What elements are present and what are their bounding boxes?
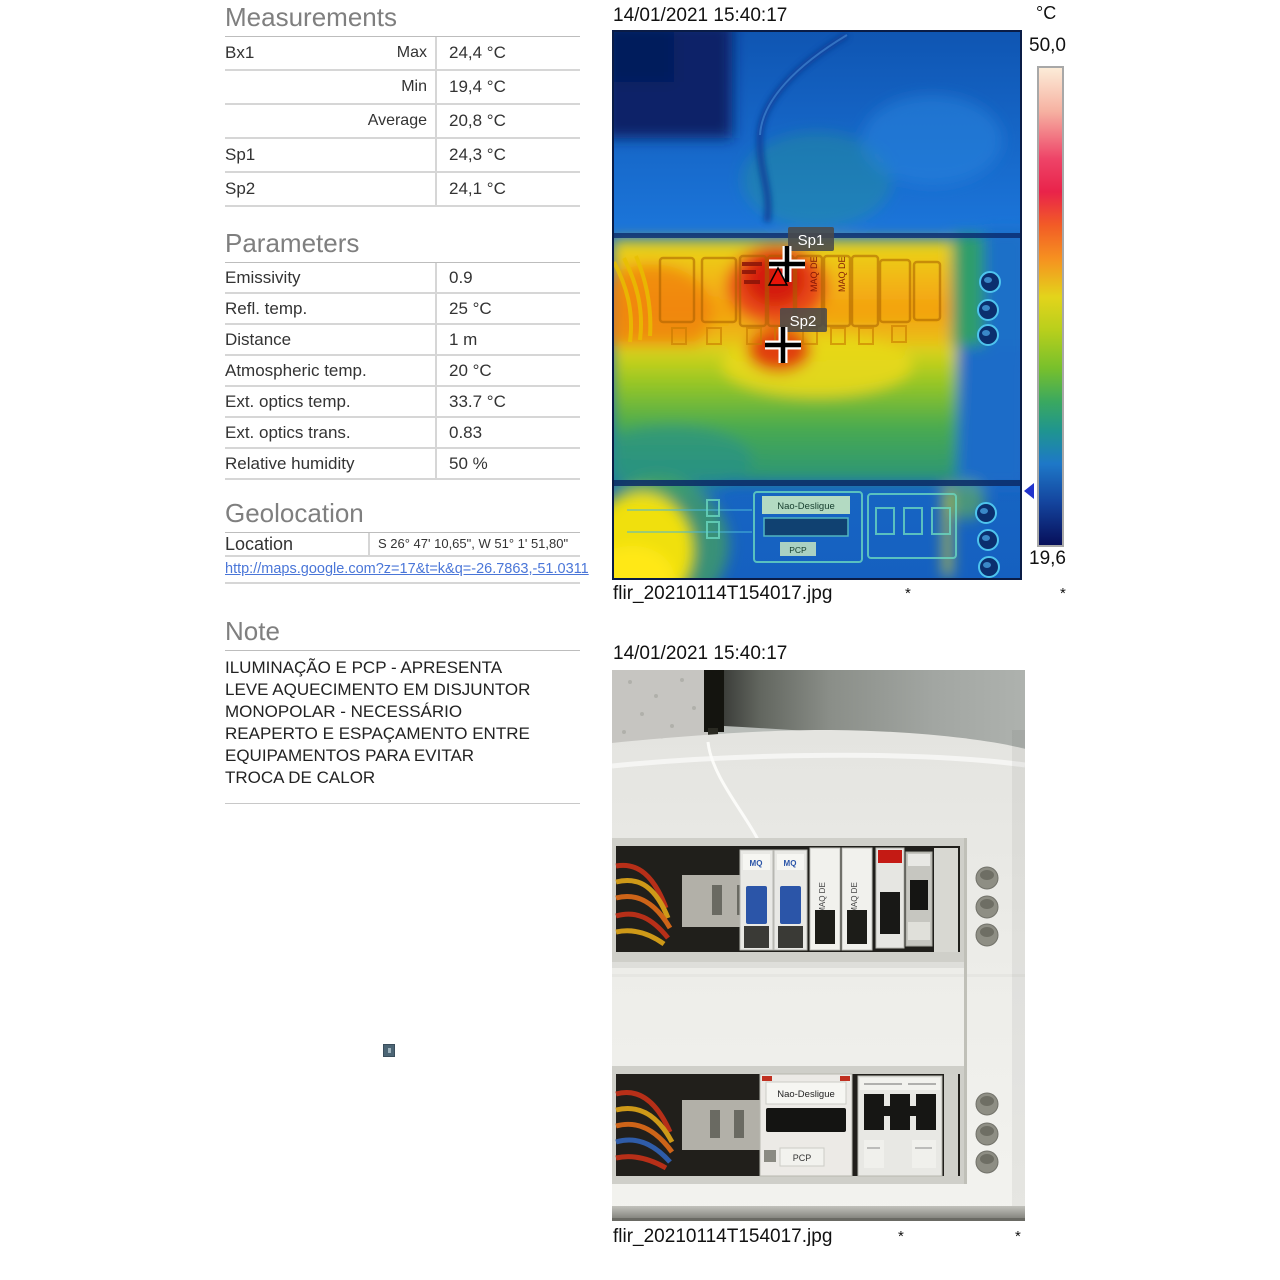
scale-min: 19,6 [1029,548,1066,570]
thermal-timestamp: 14/01/2021 15:40:17 [613,5,787,27]
param-value: 20 °C [435,356,580,385]
measure-sublabel: Max [397,44,427,62]
photo-footnote-mark: * [1015,1228,1021,1245]
geolocation-section: Geolocation Location S 26° 47' 10,65", W… [225,498,580,584]
visible-photo: MQ MQ MAQ DE MAQ DE [612,670,1025,1221]
thermal-breaker-text: MAQ DE [809,256,819,292]
thermal-footnote-mark: * [1060,585,1066,602]
table-row: Min 19,4 °C [225,71,580,105]
measurements-section: Measurements Bx1 Max 24,4 °C Min 19,4 °C… [225,2,580,207]
thermal-nao-desligue-label: Nao-Desligue [777,501,835,512]
parameters-section: Parameters Emissivity 0.9 Refl. temp. 25… [225,228,580,480]
location-value: S 26° 47' 10,65", W 51° 1' 51,80" [368,533,580,555]
table-row: Ext. optics temp. 33.7 °C [225,387,580,418]
table-row: Average 20,8 °C [225,105,580,139]
param-value: 33.7 °C [435,387,580,416]
table-row: Sp2 24,1 °C [225,173,580,207]
scale-unit: °C [1036,3,1056,24]
measure-label: Sp1 [225,145,255,165]
door-gap-shadow [704,670,724,732]
nao-desligue-label: Nao-Desligue [777,1089,835,1100]
measure-value: 24,3 °C [435,139,580,171]
param-label: Atmospheric temp. [225,361,435,381]
param-label: Ext. optics trans. [225,423,435,443]
param-label: Ext. optics temp. [225,392,435,412]
table-row: Distance 1 m [225,325,580,356]
scale-pointer-icon [1024,483,1034,499]
scale-max: 50,0 [1029,35,1066,57]
mq-breaker-label: MQ [750,859,763,868]
thermal-breaker-text: MAQ DE [837,256,847,292]
sp2-marker-label: Sp2 [790,313,817,330]
param-label: Distance [225,330,435,350]
location-label: Location [225,533,368,555]
thermal-filename: flir_20210114T154017.jpg [613,583,832,605]
param-label: Refl. temp. [225,299,435,319]
small-image-artifact [383,1044,395,1057]
maq-de-breaker-label: MAQ DE [850,882,859,914]
thermal-pcp-label: PCP [789,545,807,555]
maq-de-breaker-label: MAQ DE [818,882,827,914]
measure-value: 24,4 °C [435,37,580,69]
table-row: Relative humidity 50 % [225,449,580,480]
thermal-footnote-mark: * [905,585,911,602]
param-value: 50 % [435,449,580,478]
table-row: Emissivity 0.9 [225,263,580,294]
thermal-image: MAQ DE MAQ DE Nao-Desligue PCP [612,30,1022,580]
note-text: ILUMINAÇÃO E PCP - APRESENTA LEVE AQUECI… [225,651,580,804]
param-label: Relative humidity [225,454,435,474]
measure-label: Sp2 [225,179,255,199]
photo-filename: flir_20210114T154017.jpg [613,1226,832,1248]
note-title: Note [225,616,580,651]
pcp-label: PCP [793,1153,812,1163]
photo-footnote-mark: * [898,1228,904,1245]
geolocation-title: Geolocation [225,498,580,533]
lower-breaker-slot: Nao-Desligue PCP [612,1066,964,1184]
measurements-title: Measurements [225,2,580,37]
param-value: 1 m [435,325,580,354]
table-row: Bx1 Max 24,4 °C [225,37,580,71]
param-label: Emissivity [225,268,435,288]
google-maps-link[interactable]: http://maps.google.com?z=17&t=k&q=-26.78… [225,557,580,584]
table-row: Sp1 24,3 °C [225,139,580,173]
upper-breaker-slot: MQ MQ MAQ DE MAQ DE [612,838,964,962]
location-row: Location S 26° 47' 10,65", W 51° 1' 51,8… [225,533,580,557]
flir-report-page: { "measurements": { "title": "Measuremen… [0,0,1280,1280]
parameters-title: Parameters [225,228,580,263]
photo-timestamp: 14/01/2021 15:40:17 [613,643,787,665]
param-value: 25 °C [435,294,580,323]
mq-breaker-label: MQ [784,859,797,868]
sp1-marker-label: Sp1 [798,232,825,249]
temperature-colorbar [1037,66,1064,547]
table-row: Atmospheric temp. 20 °C [225,356,580,387]
measure-value: 19,4 °C [435,71,580,103]
param-value: 0.9 [435,263,580,292]
measure-value: 24,1 °C [435,173,580,205]
measure-value: 20,8 °C [435,105,580,137]
measure-label: Bx1 [225,43,254,63]
note-section: Note ILUMINAÇÃO E PCP - APRESENTA LEVE A… [225,616,580,804]
measure-sublabel: Average [368,112,427,130]
table-row: Refl. temp. 25 °C [225,294,580,325]
table-row: Ext. optics trans. 0.83 [225,418,580,449]
param-value: 0.83 [435,418,580,447]
measure-sublabel: Min [401,78,427,96]
